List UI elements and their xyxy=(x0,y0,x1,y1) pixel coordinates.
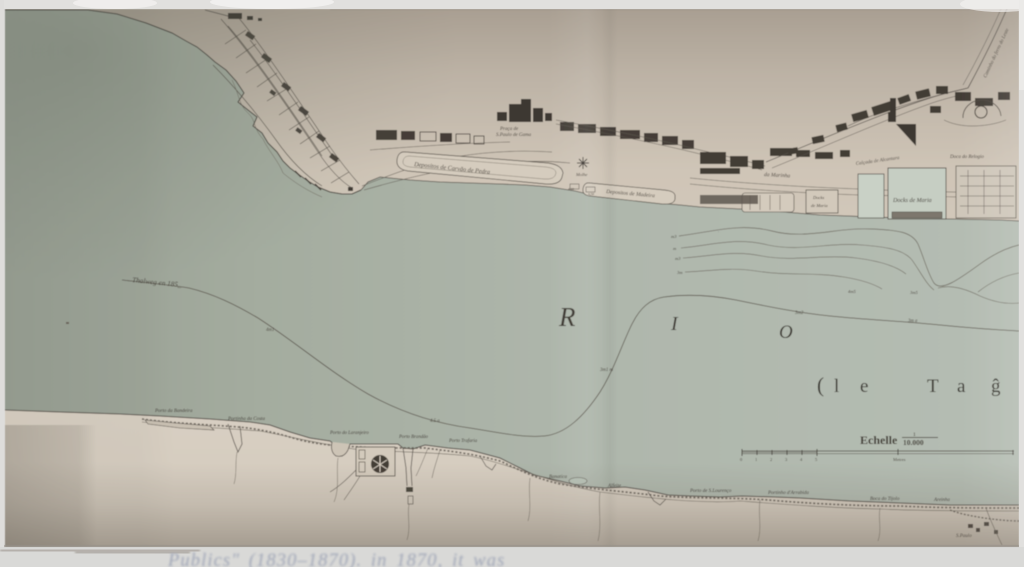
svg-text:l: l xyxy=(834,376,839,397)
svg-text:3m a: 3m a xyxy=(908,319,918,324)
svg-text:Porto Trafaria: Porto Trafaria xyxy=(448,439,478,444)
svg-text:Porto do Laranjeiro: Porto do Laranjeiro xyxy=(329,431,369,436)
svg-text:.: . xyxy=(718,228,719,233)
svg-text:Docks de Maria: Docks de Maria xyxy=(892,198,932,204)
svg-text:T: T xyxy=(927,376,939,397)
svg-text:4m5: 4m5 xyxy=(848,289,856,294)
svg-text:Publics" (1830–1870). in 1870,: Publics" (1830–1870). in 1870, it was xyxy=(167,551,505,567)
svg-text:10.000: 10.000 xyxy=(903,438,924,447)
svg-text:1: 1 xyxy=(755,457,757,462)
svg-text:O: O xyxy=(779,322,793,343)
svg-text:Porto Brandão: Porto Brandão xyxy=(398,435,429,440)
svg-text:Echelle: Echelle xyxy=(860,433,898,447)
svg-text:de Maria: de Maria xyxy=(811,203,828,208)
svg-text:Docks: Docks xyxy=(812,195,824,200)
svg-text:2: 2 xyxy=(770,457,772,462)
svg-text:3m5: 3m5 xyxy=(910,290,918,295)
svg-text:e: e xyxy=(860,376,868,397)
svg-text:Metres: Metres xyxy=(893,457,906,462)
svg-text:(: ( xyxy=(817,373,824,397)
svg-text:3m2: 3m2 xyxy=(795,311,804,316)
